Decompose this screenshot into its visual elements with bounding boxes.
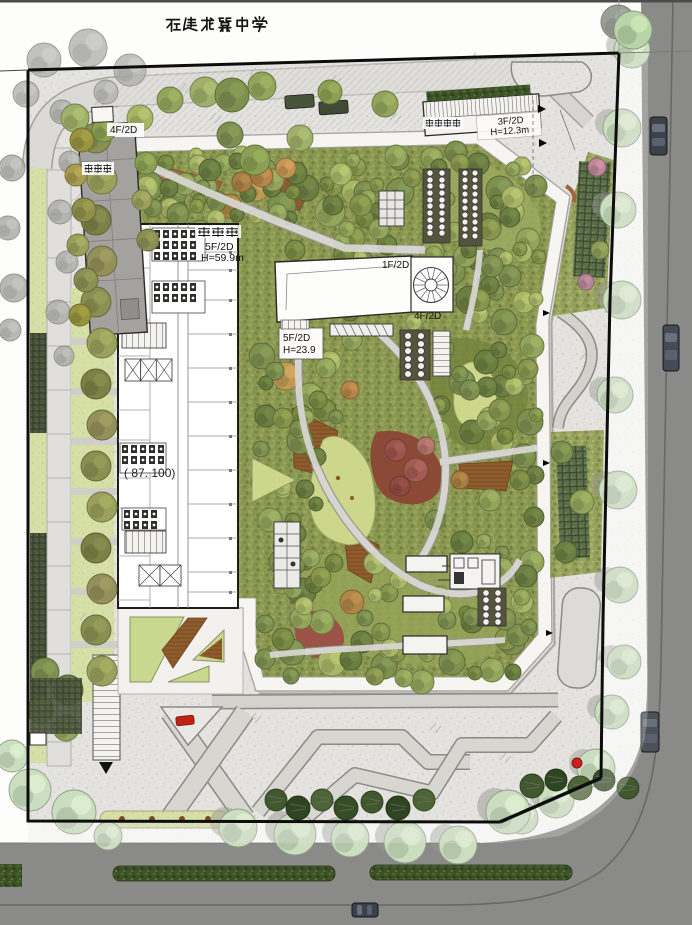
svg-text:4F/2D: 4F/2D xyxy=(110,125,137,136)
svg-text:5F/2D: 5F/2D xyxy=(283,333,310,344)
svg-text:4F/2D: 4F/2D xyxy=(414,311,441,322)
svg-text:( 87. 100): ( 87. 100) xyxy=(124,466,175,480)
svg-text:H=59.9m: H=59.9m xyxy=(201,252,244,264)
svg-text:1F/2D: 1F/2D xyxy=(382,260,409,271)
svg-text:H=23.9: H=23.9 xyxy=(283,345,316,356)
